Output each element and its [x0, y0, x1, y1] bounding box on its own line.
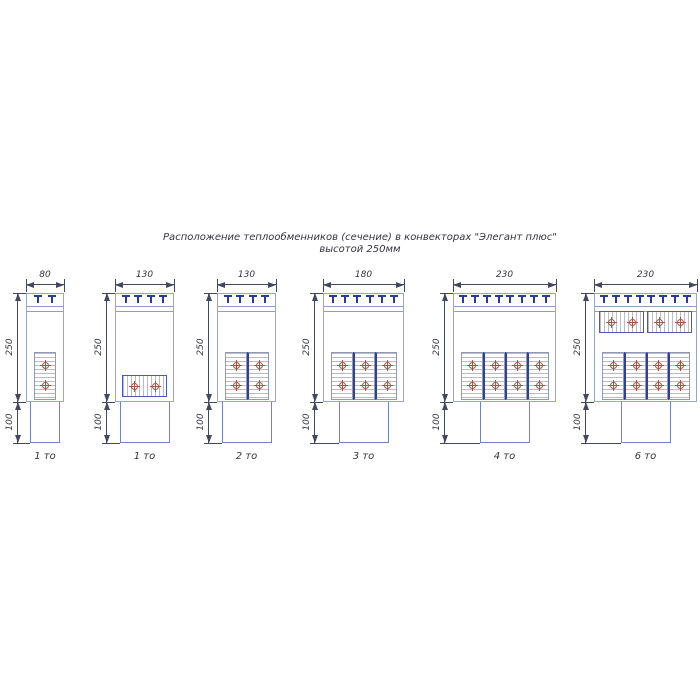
tube-cross-section-icon	[469, 362, 476, 369]
dimension-arrow-icon	[15, 293, 21, 301]
dimension-arrow-icon	[104, 402, 110, 410]
grille-tooth-icon	[329, 295, 337, 305]
heat-exchanger-block	[353, 352, 375, 400]
tube-cross-section-icon	[655, 362, 662, 369]
extension-line	[310, 402, 323, 403]
convector-name-label: 6 то	[594, 451, 697, 462]
extension-line	[115, 279, 116, 292]
drawing-title: Расположение теплообменников (сечение) в…	[20, 232, 700, 256]
grille-tooth-icon	[224, 295, 232, 305]
height-100-label: 100	[196, 413, 206, 430]
height-250-label: 250	[302, 338, 312, 355]
grille-tooth-icon	[483, 295, 491, 305]
grille-tooth-icon	[341, 295, 349, 305]
duct-outline	[621, 402, 671, 443]
extension-line	[581, 402, 594, 403]
grille	[219, 295, 274, 305]
heat-exchanger-block	[331, 352, 353, 400]
extension-line	[13, 293, 26, 294]
extension-line	[217, 279, 218, 292]
grille-tooth-icon	[542, 295, 550, 305]
tube-cross-section-icon	[677, 362, 684, 369]
dimension-arrow-icon	[442, 293, 448, 301]
width-dimension-line	[594, 284, 697, 285]
height-100-label: 100	[5, 413, 15, 430]
grille	[325, 295, 402, 305]
grille-tooth-icon	[159, 295, 167, 305]
grille-tooth-icon	[459, 295, 467, 305]
extension-line	[26, 279, 27, 292]
extension-line	[102, 402, 115, 403]
tube-cross-section-icon	[362, 382, 369, 389]
grille-tooth-icon	[48, 295, 56, 305]
height-100-label: 100	[573, 413, 583, 430]
heat-exchanger-block	[599, 311, 644, 333]
height-100-label: 100	[94, 413, 104, 430]
heat-exchanger-block	[34, 352, 56, 400]
convector-name-label: 1 то	[115, 451, 174, 462]
dimension-arrow-icon	[312, 293, 318, 301]
height-250-label: 250	[94, 338, 104, 355]
grille-line	[27, 311, 63, 312]
convector-diagram: 2302501004 то	[429, 270, 562, 466]
extension-line	[13, 443, 30, 444]
width-dimension-line	[323, 284, 404, 285]
tube-cross-section-icon	[514, 362, 521, 369]
heat-exchanger-block	[505, 352, 527, 400]
heat-exchanger-block	[624, 352, 646, 400]
dimension-arrow-icon	[312, 402, 318, 410]
grille-tooth-icon	[249, 295, 257, 305]
tube-cross-section-icon	[492, 382, 499, 389]
height-dimension-line	[17, 293, 18, 443]
grille-tooth-icon	[506, 295, 514, 305]
extension-line	[310, 443, 339, 444]
width-dimension-line	[217, 284, 276, 285]
height-dimension-line	[208, 293, 209, 443]
convector-body-outline	[594, 293, 697, 402]
tube-cross-section-icon	[362, 362, 369, 369]
width-dimension-line	[453, 284, 556, 285]
grille-tooth-icon	[647, 295, 655, 305]
width-dimension-line	[115, 284, 174, 285]
extension-line	[440, 443, 480, 444]
grille-tooth-icon	[378, 295, 386, 305]
extension-line	[64, 279, 65, 292]
dimension-arrow-icon	[442, 402, 448, 410]
convector-body-outline	[217, 293, 276, 402]
width-dimension-label: 180	[323, 270, 404, 280]
dimension-arrow-icon	[689, 282, 697, 288]
grille-tooth-icon	[236, 295, 244, 305]
extension-line	[310, 293, 323, 294]
grille-line	[218, 306, 275, 307]
grille-tooth-icon	[353, 295, 361, 305]
grille-line	[595, 306, 696, 307]
width-dimension-label: 130	[217, 270, 276, 280]
height-100-label: 100	[432, 413, 442, 430]
dimension-arrow-icon	[206, 394, 212, 402]
extension-line	[13, 402, 26, 403]
tube-cross-section-icon	[492, 362, 499, 369]
heat-exchanger-block	[225, 352, 247, 400]
dimension-arrow-icon	[583, 293, 589, 301]
tube-cross-section-icon	[469, 382, 476, 389]
dimension-arrow-icon	[396, 282, 404, 288]
height-dimension-line	[106, 293, 107, 443]
heat-exchanger-block	[461, 352, 483, 400]
dimension-arrow-icon	[323, 282, 331, 288]
convector-diagram: 1802501003 то	[299, 270, 410, 466]
tube-cross-section-icon	[633, 362, 640, 369]
convector-body-outline	[115, 293, 174, 402]
height-250-label: 250	[5, 338, 15, 355]
grille-tooth-icon	[261, 295, 269, 305]
dimension-arrow-icon	[56, 282, 64, 288]
tube-cross-section-icon	[629, 319, 636, 326]
grille-tooth-icon	[34, 295, 42, 305]
grille-tooth-icon	[624, 295, 632, 305]
convector-diagram: 802501001 то	[2, 270, 70, 466]
convector-diagram: 1302501001 то	[91, 270, 180, 466]
dimension-arrow-icon	[548, 282, 556, 288]
convector-name-label: 2 то	[217, 451, 276, 462]
grille-tooth-icon	[600, 295, 608, 305]
grille-line	[454, 311, 555, 312]
duct-outline	[339, 402, 389, 443]
dimension-arrow-icon	[583, 435, 589, 443]
grille-tooth-icon	[683, 295, 691, 305]
extension-line	[404, 279, 405, 292]
width-dimension-line	[26, 284, 64, 285]
tube-cross-section-icon	[610, 382, 617, 389]
tube-cross-section-icon	[384, 362, 391, 369]
dimension-arrow-icon	[26, 282, 34, 288]
height-100-label: 100	[302, 413, 312, 430]
dimension-arrow-icon	[104, 394, 110, 402]
tube-cross-section-icon	[42, 382, 49, 389]
duct-outline	[480, 402, 530, 443]
exchanger-row	[598, 311, 694, 333]
grille	[455, 295, 554, 305]
width-dimension-label: 130	[115, 270, 174, 280]
exchanger-row	[602, 352, 690, 400]
tube-cross-section-icon	[514, 382, 521, 389]
grille-tooth-icon	[636, 295, 644, 305]
exchanger-row	[461, 352, 549, 400]
grille-tooth-icon	[134, 295, 142, 305]
grille-tooth-icon	[147, 295, 155, 305]
convector-name-label: 3 то	[323, 451, 404, 462]
dimension-arrow-icon	[583, 394, 589, 402]
heat-exchanger-block	[375, 352, 397, 400]
grille-tooth-icon	[518, 295, 526, 305]
tube-cross-section-icon	[610, 362, 617, 369]
extension-line	[204, 293, 217, 294]
dimension-arrow-icon	[166, 282, 174, 288]
extension-line	[453, 279, 454, 292]
height-250-label: 250	[432, 338, 442, 355]
tube-cross-section-icon	[339, 362, 346, 369]
dimension-arrow-icon	[217, 282, 225, 288]
dimension-arrow-icon	[15, 402, 21, 410]
width-dimension-label: 230	[594, 270, 697, 280]
tube-cross-section-icon	[339, 382, 346, 389]
dimension-arrow-icon	[453, 282, 461, 288]
convector-diagram: 2302501006 то	[570, 270, 700, 466]
exchanger-row	[121, 375, 169, 397]
convector-name-label: 1 то	[26, 451, 64, 462]
heat-exchanger-block	[602, 352, 624, 400]
tube-cross-section-icon	[656, 319, 663, 326]
exchanger-row	[34, 352, 56, 400]
heat-exchanger-block	[527, 352, 549, 400]
height-dimension-line	[585, 293, 586, 443]
heat-exchanger-block	[646, 352, 668, 400]
height-250-label: 250	[196, 338, 206, 355]
dimension-arrow-icon	[583, 402, 589, 410]
tube-cross-section-icon	[256, 382, 263, 389]
grille-tooth-icon	[659, 295, 667, 305]
extension-line	[174, 279, 175, 292]
extension-line	[581, 443, 621, 444]
height-250-label: 250	[573, 338, 583, 355]
grille-line	[324, 306, 403, 307]
tube-cross-section-icon	[233, 362, 240, 369]
tube-cross-section-icon	[655, 382, 662, 389]
convector-body-outline	[323, 293, 404, 402]
tube-cross-section-icon	[536, 362, 543, 369]
grille-line	[116, 306, 173, 307]
heat-exchanger-block	[668, 352, 690, 400]
grille-tooth-icon	[471, 295, 479, 305]
extension-line	[440, 402, 453, 403]
grille-tooth-icon	[671, 295, 679, 305]
title-line-2: высотой 250мм	[20, 244, 700, 256]
heat-exchanger-block	[122, 375, 167, 397]
height-dimension-line	[314, 293, 315, 443]
grille-tooth-icon	[390, 295, 398, 305]
extension-line	[204, 402, 217, 403]
convector-name-label: 4 то	[453, 451, 556, 462]
dimension-arrow-icon	[312, 394, 318, 402]
exchanger-row	[331, 352, 397, 400]
dimension-arrow-icon	[206, 293, 212, 301]
extension-line	[440, 293, 453, 294]
dimension-arrow-icon	[115, 282, 123, 288]
extension-line	[204, 443, 222, 444]
width-dimension-label: 80	[26, 270, 64, 280]
grille-line	[27, 306, 63, 307]
grille-tooth-icon	[366, 295, 374, 305]
duct-outline	[120, 402, 170, 443]
extension-line	[594, 279, 595, 292]
extension-line	[102, 443, 120, 444]
duct-outline	[30, 402, 60, 443]
dimension-arrow-icon	[104, 293, 110, 301]
tube-cross-section-icon	[608, 319, 615, 326]
grille	[596, 295, 695, 305]
grille	[117, 295, 172, 305]
tube-cross-section-icon	[233, 382, 240, 389]
tube-cross-section-icon	[536, 382, 543, 389]
tube-cross-section-icon	[131, 383, 138, 390]
tube-cross-section-icon	[256, 362, 263, 369]
tube-cross-section-icon	[677, 382, 684, 389]
exchanger-row	[225, 352, 269, 400]
convector-body-outline	[453, 293, 556, 402]
tube-cross-section-icon	[677, 319, 684, 326]
dimension-arrow-icon	[15, 394, 21, 402]
tube-cross-section-icon	[152, 383, 159, 390]
dimension-arrow-icon	[104, 435, 110, 443]
grille	[28, 295, 62, 305]
extension-line	[102, 293, 115, 294]
dimension-arrow-icon	[268, 282, 276, 288]
dimension-arrow-icon	[206, 402, 212, 410]
heat-exchanger-block	[483, 352, 505, 400]
dimension-arrow-icon	[312, 435, 318, 443]
tube-cross-section-icon	[42, 362, 49, 369]
heat-exchanger-block	[247, 352, 269, 400]
dimension-arrow-icon	[594, 282, 602, 288]
grille-tooth-icon	[530, 295, 538, 305]
dimension-arrow-icon	[442, 435, 448, 443]
grille-tooth-icon	[122, 295, 130, 305]
duct-outline	[222, 402, 272, 443]
heat-exchanger-block	[647, 311, 692, 333]
dimension-arrow-icon	[442, 394, 448, 402]
extension-line	[323, 279, 324, 292]
dimension-arrow-icon	[206, 435, 212, 443]
extension-line	[276, 279, 277, 292]
drawing-canvas: Расположение теплообменников (сечение) в…	[0, 0, 700, 700]
grille-line	[324, 311, 403, 312]
dimension-arrow-icon	[15, 435, 21, 443]
tube-cross-section-icon	[384, 382, 391, 389]
title-line-1: Расположение теплообменников (сечение) в…	[20, 232, 700, 244]
grille-tooth-icon	[612, 295, 620, 305]
convector-body-outline	[26, 293, 64, 402]
height-dimension-line	[444, 293, 445, 443]
extension-line	[581, 293, 594, 294]
grille-line	[218, 311, 275, 312]
grille-line	[116, 311, 173, 312]
extension-line	[556, 279, 557, 292]
grille-tooth-icon	[495, 295, 503, 305]
width-dimension-label: 230	[453, 270, 556, 280]
extension-line	[697, 279, 698, 292]
grille-line	[454, 306, 555, 307]
tube-cross-section-icon	[633, 382, 640, 389]
convector-diagram: 1302501002 то	[193, 270, 282, 466]
